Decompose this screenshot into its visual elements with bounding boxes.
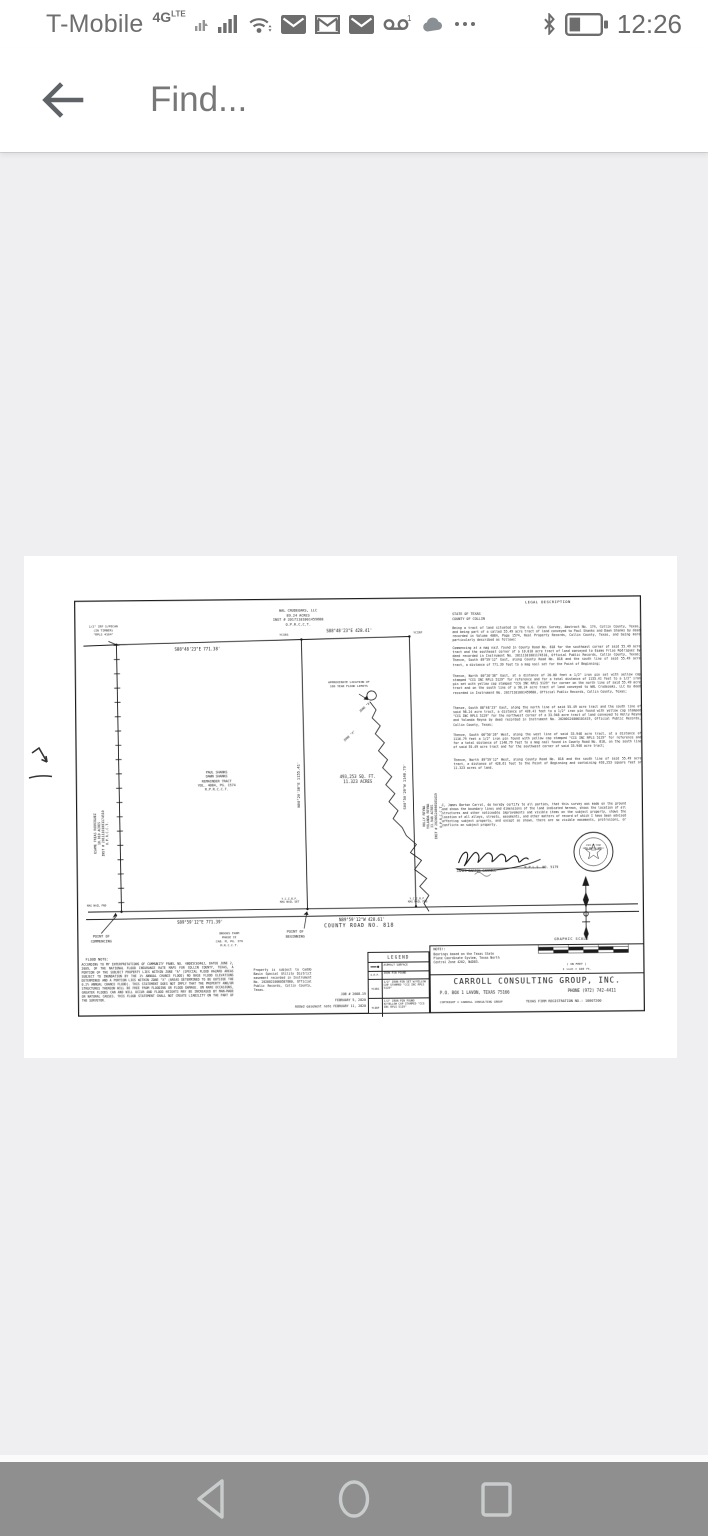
dim-road-west: S89°59'12"E 771.39' bbox=[177, 919, 223, 925]
legal-paragraph-5: Thence, South 00°50'26" West, along the … bbox=[453, 731, 641, 749]
document-page: WAL CRUDEOAKS, LLC89.24 ACRES INST # 201… bbox=[24, 556, 677, 1058]
handwritten-margin-mark bbox=[26, 742, 54, 786]
navigation-bar bbox=[0, 1462, 708, 1536]
back-triangle-icon bbox=[191, 1477, 231, 1521]
firm-name: CARROLL CONSULTING GROUP, INC. bbox=[430, 975, 645, 987]
point-of-commencing-label: POINT OFCOMMENCING bbox=[79, 934, 123, 944]
voicemail-notification-icon: 1 bbox=[383, 15, 412, 33]
clock: 12:26 bbox=[617, 9, 682, 40]
bearing-note-body: Bearings based on the Texas State Plane … bbox=[433, 953, 501, 966]
firm-registration: TEXAS FIRM REGISTRATION NO.: 10007200 bbox=[526, 998, 602, 1003]
back-button[interactable] bbox=[36, 74, 88, 126]
legend-title: LEGEND bbox=[368, 952, 428, 963]
voicemail-badge: 1 bbox=[407, 15, 412, 23]
carrier-label: T-Mobile bbox=[46, 10, 143, 39]
pob-pin-labels: Y.C.I.R.F.MAG NAIL SET bbox=[280, 897, 299, 904]
wifi-icon bbox=[248, 15, 272, 34]
legend-row: YCIRS 1/2" IRON PIN SET W/YELLOW CAP STA… bbox=[369, 979, 429, 999]
gmail-notification-icon bbox=[315, 15, 340, 34]
document-viewer[interactable]: WAL CRUDEOAKS, LLC89.24 ACRES INST # 201… bbox=[0, 152, 708, 1455]
network-lte-label: LTE bbox=[171, 9, 186, 18]
network-4g-label: 4G bbox=[152, 9, 171, 25]
owner-north-label: WAL CRUDEOAKS, LLC89.24 ACRES INST # 201… bbox=[258, 608, 338, 627]
graphic-scale-title: GRAPHIC SCALE bbox=[554, 937, 589, 942]
status-bar-right: 12:26 bbox=[542, 9, 682, 40]
legal-county: COUNTY OF COLLIN bbox=[452, 617, 485, 622]
owner-west-label: ESAME FRIAS RODRIGUEZ10.010 ACRES INST #… bbox=[93, 810, 110, 856]
bluetooth-icon bbox=[542, 13, 557, 35]
dim-east: S00°50'26"W 1148.79' bbox=[403, 764, 408, 810]
home-circle-icon bbox=[334, 1477, 374, 1521]
legend-table: LEGEND ASPHALT SURFACE I.P.F. IRON PIN F… bbox=[367, 951, 430, 1014]
battery-icon bbox=[565, 13, 609, 36]
asphalt-symbol bbox=[369, 963, 383, 971]
status-bar-left: T-Mobile 4GLTE 1 bbox=[46, 10, 476, 39]
flood-limit-line bbox=[367, 690, 429, 911]
recents-square-icon bbox=[477, 1477, 517, 1521]
nav-recents-button[interactable] bbox=[467, 1469, 527, 1529]
signal-strength-icon bbox=[217, 13, 239, 35]
survey-plat: WAL CRUDEOAKS, LLC89.24 ACRES INST # 201… bbox=[74, 595, 645, 1016]
back-arrow-icon bbox=[39, 80, 85, 120]
east-road-pin-labels: Y.C.I.R.F.MAG NAIL FND bbox=[408, 897, 427, 904]
more-notifications-icon bbox=[454, 21, 476, 27]
dim-west-interior: N00°20'38"E 1155.41' bbox=[297, 762, 302, 808]
legal-state: STATE OF TEXAS bbox=[452, 612, 481, 617]
subject-tract-label: PAUL SHANKSDAWN SHANKS REMAINDER TRACTVO… bbox=[187, 770, 247, 792]
network-type-label: 4GLTE bbox=[152, 9, 185, 25]
pin-ycirs-label: YCIRS bbox=[279, 633, 288, 637]
graphic-scale-bar bbox=[538, 944, 628, 953]
status-bar: T-Mobile 4GLTE 1 12:26 bbox=[0, 0, 708, 48]
dim-north-east: S88°48'23"E 428.41' bbox=[326, 627, 372, 633]
easement-note: Property is subject to Caddo Basin Speci… bbox=[254, 968, 312, 992]
legal-paragraph-6: Thence, North 89°59'12" West, along Coun… bbox=[454, 756, 642, 770]
legal-paragraph-4: Thence, South 88°48'23" East, along the … bbox=[453, 704, 641, 727]
legal-paragraph-1: Being a tract of land situated in the G.… bbox=[452, 624, 640, 642]
pin-ycirf-label: YCIRF bbox=[413, 631, 422, 635]
area-label: 493,253 SQ. FT.11.323 ACRES bbox=[328, 774, 388, 785]
content-edge-strip bbox=[0, 1455, 708, 1462]
bearing-note-title: NOTE!: bbox=[433, 947, 445, 952]
firm-phone: PHONE (972) 742-4411 bbox=[568, 987, 616, 993]
seal-text: STATE OF TEXASJAMES BARTON CARROLL5129 bbox=[576, 845, 610, 853]
flood-note-body: ACCORDING TO MY INTERPRETATIONS OF COMMU… bbox=[82, 962, 234, 1003]
secondary-signal-icon bbox=[195, 17, 208, 32]
legend-row: YCIRF 1/2" IRON PIN FOUND W/YELLOW CAP S… bbox=[369, 998, 429, 1017]
nav-home-button[interactable] bbox=[324, 1469, 384, 1529]
nw-monument-label: 1/2" IRF S/PECAN(IN TIMBER)"RPLS 4104" bbox=[82, 625, 124, 637]
point-of-beginning-label: POINT OFBEGINNING bbox=[273, 929, 317, 939]
owner-east-label: HOLLY REYNAYOLANDA REYNA 33.948 ACRESINS… bbox=[422, 793, 443, 839]
surveyor-rpls: R.P.L.S. NO. 5179 bbox=[525, 865, 559, 870]
job-notes: JOB # 2608-19FEBRUARY 5, 2020Added easem… bbox=[294, 991, 366, 1010]
email-notification-icon-2 bbox=[349, 15, 374, 34]
nav-back-button[interactable] bbox=[181, 1469, 241, 1529]
legal-description-title: LEGAL DESCRIPTION bbox=[525, 600, 571, 605]
brooks-farm-label: BROOKS FARMPHASE II CAB. M, PG. 379M.R.C… bbox=[205, 932, 253, 948]
find-input[interactable]: Find... bbox=[150, 80, 247, 120]
road-name-label: COUNTY ROAD NO. 818 bbox=[324, 923, 394, 930]
firm-address: P.O. BOX 1 LAVON, TEXAS 75166 bbox=[440, 990, 510, 996]
dim-road-east: N89°59'12"W 428.61' bbox=[339, 916, 385, 922]
legal-paragraph-2: Commencing at a mag nail found in County… bbox=[452, 644, 640, 667]
firm-copyright: COPYRIGHT © CARROLL CONSULTING GROUP bbox=[440, 1001, 503, 1005]
legal-paragraph-3: Thence, North 00°20'38" East, at a dista… bbox=[453, 672, 641, 695]
surveyor-name: JAMES BARTON CARROLL bbox=[457, 869, 497, 874]
flood-limit-label: APPROXIMATE LOCATION OF100 YEAR FLOOD LI… bbox=[315, 681, 383, 689]
email-notification-icon bbox=[281, 15, 306, 34]
north-arrow-icon bbox=[582, 876, 591, 940]
cloud-notification-icon bbox=[421, 16, 445, 33]
dim-north-west: S88°48'23"E 771.38' bbox=[174, 646, 220, 652]
graphic-scale-ratio: 1 inch = 100 ft. bbox=[563, 967, 592, 971]
mag-nail-found-label: MAG NAIL FND bbox=[87, 904, 106, 908]
surveyor-certification: I, James Barton Carrol, do hereby certif… bbox=[442, 801, 626, 827]
find-toolbar: Find... bbox=[0, 48, 708, 152]
